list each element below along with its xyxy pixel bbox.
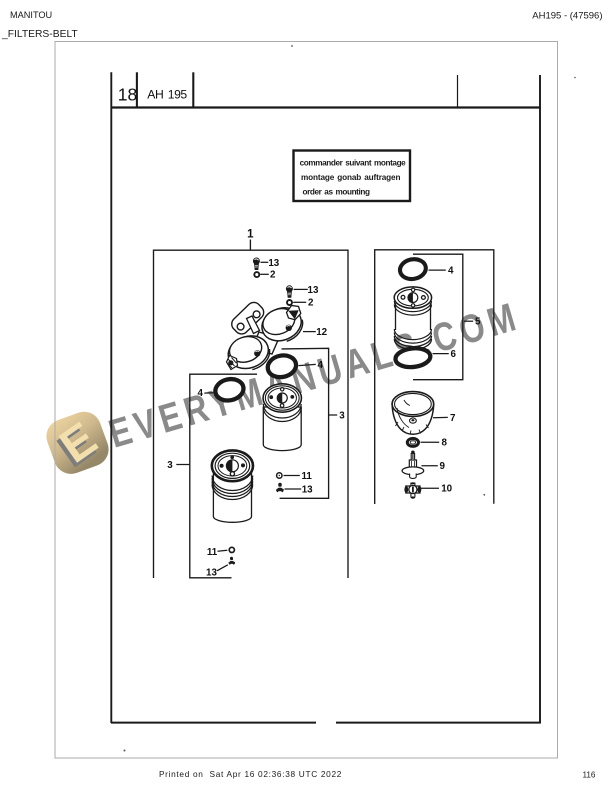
svg-text:11: 11 (207, 547, 218, 558)
svg-text:13: 13 (308, 285, 319, 296)
svg-text:order as mounting: order as mounting (303, 188, 370, 197)
svg-text:116: 116 (582, 771, 595, 780)
svg-text:4: 4 (448, 266, 454, 277)
svg-text:3: 3 (339, 410, 345, 421)
svg-text:4: 4 (317, 360, 323, 371)
svg-text:montage gonab auftragen: montage gonab auftragen (301, 173, 400, 182)
svg-text:8: 8 (441, 438, 447, 449)
svg-text:13: 13 (302, 484, 313, 495)
svg-text:Printed on Sat Apr 16 02:36:3: Printed on Sat Apr 16 02:36:38 UTC 2022 (159, 769, 342, 779)
svg-text:MANITOU: MANITOU (10, 10, 52, 20)
svg-text:5: 5 (475, 317, 481, 328)
svg-text:2: 2 (270, 270, 276, 281)
svg-text:10: 10 (441, 484, 452, 495)
svg-text:1: 1 (247, 229, 254, 241)
svg-text:13: 13 (206, 568, 217, 579)
svg-text:9: 9 (439, 461, 445, 472)
svg-text:_FILTERS-BELT: _FILTERS-BELT (1, 29, 78, 40)
svg-text:12: 12 (316, 327, 327, 338)
svg-text:6: 6 (450, 349, 456, 360)
svg-text:3: 3 (167, 460, 173, 471)
svg-text:13: 13 (268, 258, 279, 269)
svg-text:2: 2 (308, 298, 314, 309)
svg-text:EVERYMANUALS.COM: EVERYMANUALS.COM (104, 293, 525, 457)
svg-text:11: 11 (302, 471, 313, 482)
svg-text:4: 4 (197, 388, 203, 399)
svg-text:7: 7 (450, 413, 456, 424)
svg-text:commander suivant montage: commander suivant montage (300, 158, 407, 167)
svg-text:AH195 - (47596): AH195 - (47596) (532, 11, 602, 22)
svg-text:AH 195: AH 195 (147, 87, 187, 101)
svg-text:18: 18 (118, 85, 137, 105)
